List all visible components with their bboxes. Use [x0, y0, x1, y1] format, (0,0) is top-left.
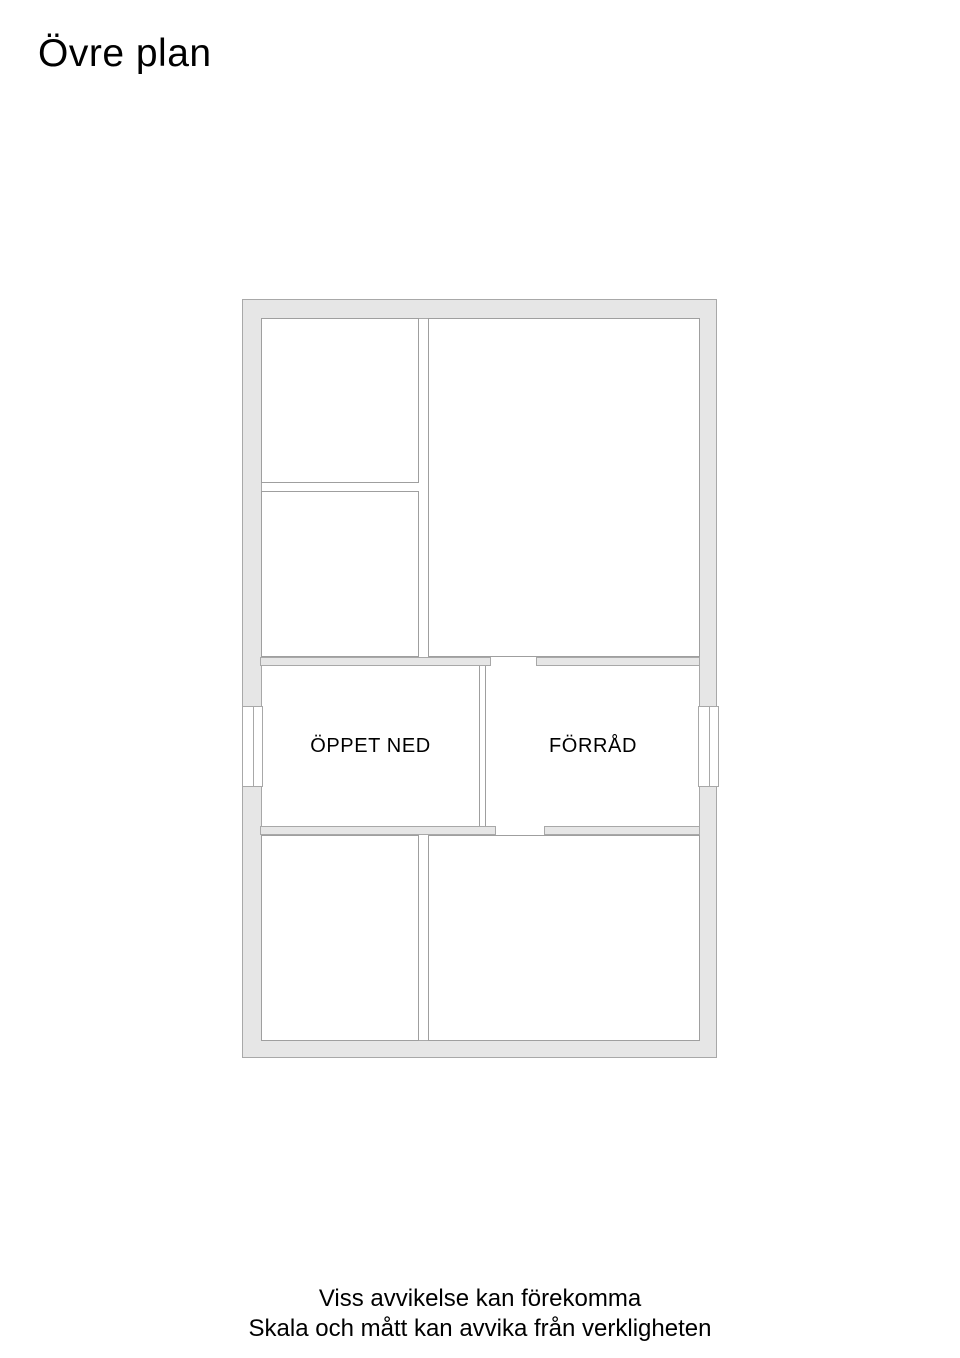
room-label-oppet-ned: ÖPPET NED — [310, 735, 431, 758]
room-label-forrad: FÖRRÅD — [549, 735, 637, 758]
wall-bottom-right — [544, 826, 700, 835]
room-top-left — [261, 318, 419, 483]
room-bottom-left — [261, 835, 419, 1041]
wall-oppet-ned-right — [479, 666, 486, 826]
floor-plan: ÖPPET NED FÖRRÅD — [242, 299, 717, 1058]
window-left — [242, 706, 263, 787]
wall-mid-right — [536, 657, 700, 666]
wall-bottom-left — [260, 826, 496, 835]
disclaimer-line-2: Skala och mått kan avvika från verklighe… — [0, 1314, 960, 1344]
window-right — [698, 706, 719, 787]
area-oppet-ned: ÖPPET NED — [262, 666, 479, 826]
window-pane-divider — [709, 707, 710, 786]
window-pane-divider — [253, 707, 254, 786]
disclaimer: Viss avvikelse kan förekomma Skala och m… — [0, 1284, 960, 1344]
room-mid-left — [261, 491, 419, 657]
disclaimer-line-1: Viss avvikelse kan förekomma — [0, 1284, 960, 1314]
room-large-right — [428, 318, 700, 657]
area-forrad: FÖRRÅD — [486, 666, 700, 826]
page-title: Övre plan — [38, 32, 212, 76]
wall-mid-left — [260, 657, 491, 666]
room-bottom-right — [428, 835, 700, 1041]
